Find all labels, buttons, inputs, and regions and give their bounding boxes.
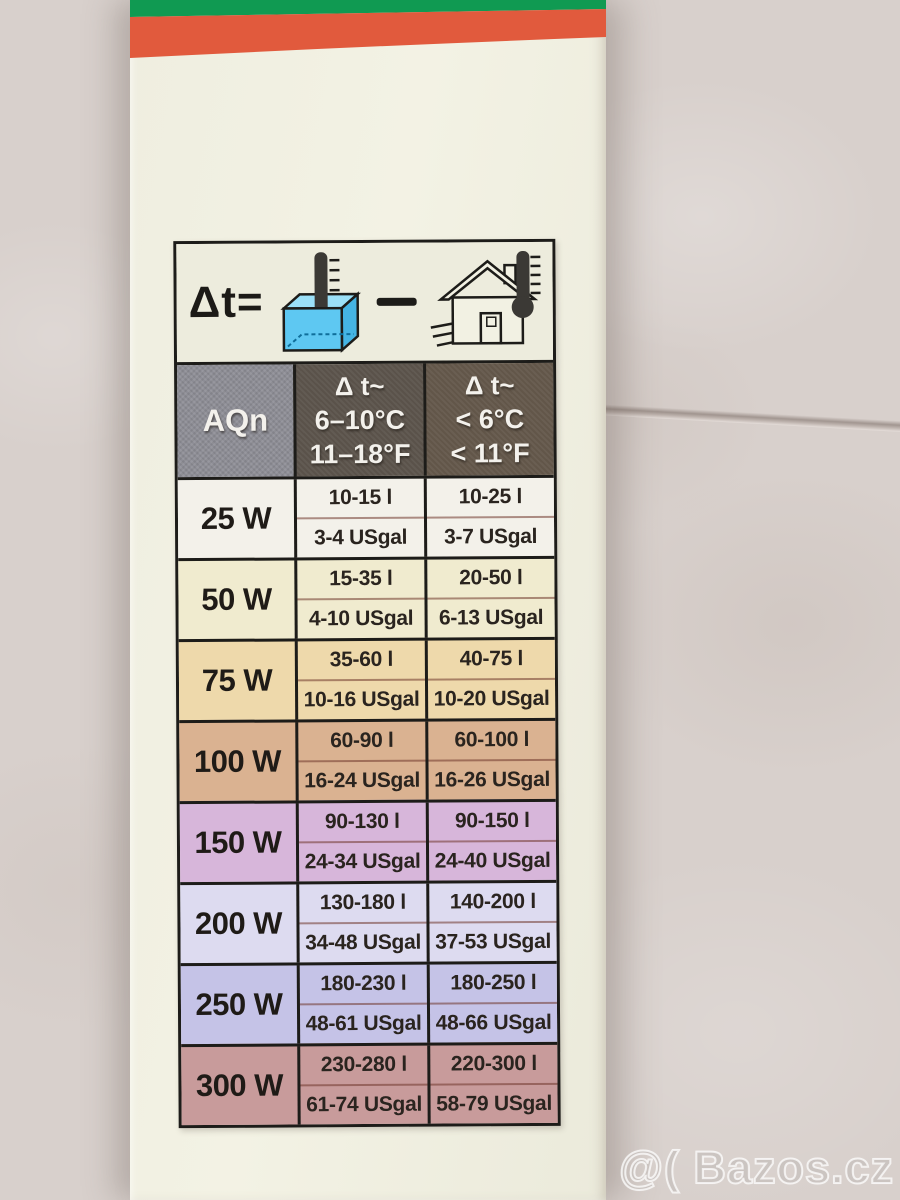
liters-value: 10-15 l xyxy=(297,479,424,520)
package-stripes xyxy=(130,0,606,60)
mild-range-cell: 15-35 l 4-10 USgal xyxy=(294,560,424,639)
wattage-label: 300 W xyxy=(181,1046,297,1125)
usgal-value: 16-24 USgal xyxy=(298,762,425,801)
mild-range-cell: 60-90 l 16-24 USgal xyxy=(295,722,425,801)
table-row: 150 W 90-130 l 24-34 USgal 90-150 l 24-4… xyxy=(180,799,556,882)
delta-t-formula-row: Δt= xyxy=(176,242,553,362)
usgal-value: 24-40 USgal xyxy=(429,842,556,881)
usgal-value: 16-26 USgal xyxy=(428,761,555,800)
table-row: 75 W 35-60 l 10-16 USgal 40-75 l 10-20 U… xyxy=(179,637,555,720)
liters-value: 60-90 l xyxy=(298,722,425,763)
bazos-watermark: @( Bazos.cz xyxy=(619,1142,894,1194)
table-row: 250 W 180-230 l 48-61 USgal 180-250 l 48… xyxy=(181,961,557,1044)
usgal-value: 48-66 USgal xyxy=(430,1004,557,1043)
aquarium-thermometer-icon xyxy=(276,250,365,355)
liters-value: 90-150 l xyxy=(429,802,556,843)
cold-range-cell: 180-250 l 48-66 USgal xyxy=(427,964,557,1043)
usgal-value: 34-48 USgal xyxy=(299,924,426,963)
wattage-label: 150 W xyxy=(180,803,296,882)
liters-value: 230-280 l xyxy=(300,1046,427,1087)
liters-value: 35-60 l xyxy=(298,641,425,682)
usgal-value: 58-79 USgal xyxy=(430,1085,557,1124)
cold-range-cell: 90-150 l 24-40 USgal xyxy=(426,802,556,881)
table-row: 50 W 15-35 l 4-10 USgal 20-50 l 6-13 USg… xyxy=(178,556,554,639)
usgal-value: 6-13 USgal xyxy=(427,599,554,638)
cold-range-cell: 220-300 l 58-79 USgal xyxy=(427,1045,557,1124)
wattage-label: 75 W xyxy=(179,641,295,720)
liters-value: 10-25 l xyxy=(427,478,554,519)
cold-range-cell: 10-25 l 3-7 USgal xyxy=(424,478,554,557)
liters-value: 140-200 l xyxy=(429,883,556,924)
red-stripe xyxy=(130,9,606,58)
table-row: 200 W 130-180 l 34-48 USgal 140-200 l 37… xyxy=(180,880,556,963)
cold-range-cell: 60-100 l 16-26 USgal xyxy=(425,721,555,800)
mild-range-cell: 230-280 l 61-74 USgal xyxy=(297,1046,427,1125)
table-header-row: AQn Δ t~ 6–10°C 11–18°F Δ t~ < 6°C < 11°… xyxy=(177,360,554,477)
wattage-label: 200 W xyxy=(180,884,296,963)
usgal-value: 4-10 USgal xyxy=(297,600,424,639)
liters-value: 60-100 l xyxy=(428,721,555,762)
table-row: 25 W 10-15 l 3-4 USgal 10-25 l 3-7 USgal xyxy=(178,475,554,558)
heater-sizing-table: Δt= xyxy=(173,239,560,1128)
cold-range-cell: 40-75 l 10-20 USgal xyxy=(425,640,555,719)
table-row: 100 W 60-90 l 16-24 USgal 60-100 l 16-26… xyxy=(179,718,555,801)
usgal-value: 3-4 USgal xyxy=(297,519,424,558)
mild-range-cell: 10-15 l 3-4 USgal xyxy=(294,479,424,558)
aqn-label: AQn xyxy=(203,404,269,438)
liters-value: 220-300 l xyxy=(430,1045,557,1086)
wattage-label: 50 W xyxy=(178,560,294,639)
header-mild-delta-cell: Δ t~ 6–10°C 11–18°F xyxy=(293,364,424,477)
liters-value: 180-230 l xyxy=(300,965,427,1006)
usgal-value: 3-7 USgal xyxy=(427,518,554,557)
header-aqn-cell: AQn xyxy=(177,364,294,477)
liters-value: 40-75 l xyxy=(428,640,555,681)
liters-value: 20-50 l xyxy=(427,559,554,600)
header-cold-delta-cell: Δ t~ < 6°C < 11°F xyxy=(423,363,554,476)
mild-range-cell: 90-130 l 24-34 USgal xyxy=(296,803,426,882)
house-thermometer-icon xyxy=(428,249,541,354)
liters-value: 90-130 l xyxy=(299,803,426,844)
mild-range-cell: 130-180 l 34-48 USgal xyxy=(296,884,426,963)
wattage-label: 100 W xyxy=(179,722,295,801)
cold-range-cell: 140-200 l 37-53 USgal xyxy=(426,883,556,962)
delta-t-label: Δt= xyxy=(189,278,264,328)
table-row: 300 W 230-280 l 61-74 USgal 220-300 l 58… xyxy=(181,1042,557,1125)
liters-value: 130-180 l xyxy=(299,884,426,925)
usgal-value: 48-61 USgal xyxy=(300,1005,427,1044)
liters-value: 15-35 l xyxy=(297,560,424,601)
mild-range-cell: 35-60 l 10-16 USgal xyxy=(295,641,425,720)
wattage-label: 250 W xyxy=(181,965,297,1044)
minus-icon xyxy=(376,298,416,306)
photo-scene: Δt= xyxy=(0,0,900,1200)
liters-value: 180-250 l xyxy=(430,964,557,1005)
usgal-value: 61-74 USgal xyxy=(300,1086,427,1125)
mild-range-cell: 180-230 l 48-61 USgal xyxy=(297,965,427,1044)
usgal-value: 24-34 USgal xyxy=(299,843,426,882)
cold-range-cell: 20-50 l 6-13 USgal xyxy=(424,559,554,638)
usgal-value: 37-53 USgal xyxy=(429,923,556,962)
usgal-value: 10-20 USgal xyxy=(428,680,555,719)
tile-grout-line xyxy=(598,404,900,433)
wattage-label: 25 W xyxy=(178,479,294,558)
usgal-value: 10-16 USgal xyxy=(298,681,425,720)
